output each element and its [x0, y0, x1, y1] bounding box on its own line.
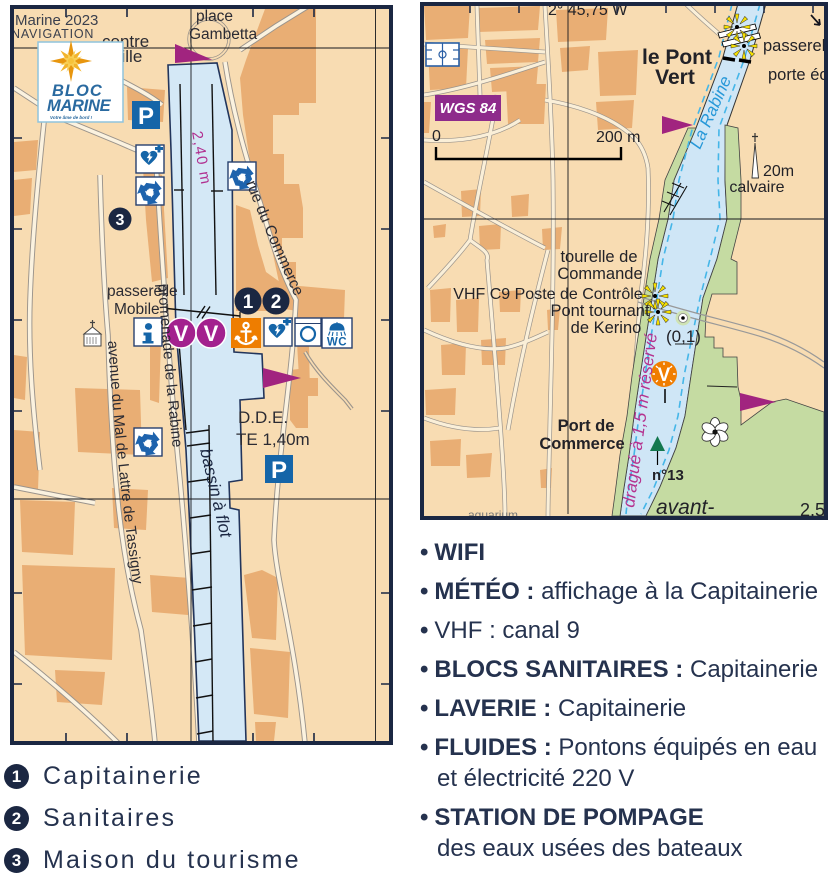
svg-text:calvaire: calvaire: [729, 179, 784, 196]
svg-text:MARINE: MARINE: [47, 97, 112, 115]
svg-text:n°13: n°13: [652, 467, 684, 484]
svg-text:Port de: Port de: [558, 417, 615, 435]
svg-text:Pont tournant: Pont tournant: [550, 302, 649, 320]
svg-text:Commande: Commande: [557, 265, 642, 283]
svg-text:Mobile: Mobile: [114, 301, 160, 318]
svg-text:porte écluse: porte écluse: [768, 66, 828, 84]
svg-text:0: 0: [432, 128, 441, 145]
svg-text:passerelle: passerelle: [763, 37, 828, 55]
svg-text:(0,1): (0,1): [666, 327, 701, 346]
svg-text:Commerce: Commerce: [539, 435, 624, 453]
svg-text:NAVIGATION: NAVIGATION: [11, 27, 94, 41]
svg-text:passerelle: passerelle: [107, 283, 178, 300]
svg-text:D.D.E.: D.D.E.: [238, 408, 288, 427]
svg-text:Gambetta: Gambetta: [189, 26, 257, 43]
svg-text:3: 3: [116, 212, 125, 229]
svg-text:Vert: Vert: [655, 66, 695, 89]
svg-text:avant-: avant-: [656, 496, 714, 519]
svg-text:20m: 20m: [763, 163, 794, 180]
svg-text:Votre âme de bord !: Votre âme de bord !: [50, 115, 93, 120]
svg-text:1: 1: [243, 292, 254, 313]
svg-text:V: V: [658, 365, 671, 386]
svg-text:V: V: [204, 321, 219, 346]
svg-text:place: place: [196, 8, 233, 25]
svg-text:de Kerino: de Kerino: [571, 319, 642, 337]
svg-text:WGS 84: WGS 84: [440, 100, 497, 117]
svg-text:V: V: [174, 321, 189, 346]
svg-text:WC: WC: [327, 337, 347, 349]
svg-text:tourelle de: tourelle de: [560, 248, 637, 266]
svg-text:200 m: 200 m: [596, 129, 640, 146]
svg-text:2: 2: [271, 292, 282, 313]
svg-text:VHF C9 Poste de Contrôle: VHF C9 Poste de Contrôle: [453, 286, 643, 303]
svg-text:TE 1,40m: TE 1,40m: [236, 430, 310, 449]
